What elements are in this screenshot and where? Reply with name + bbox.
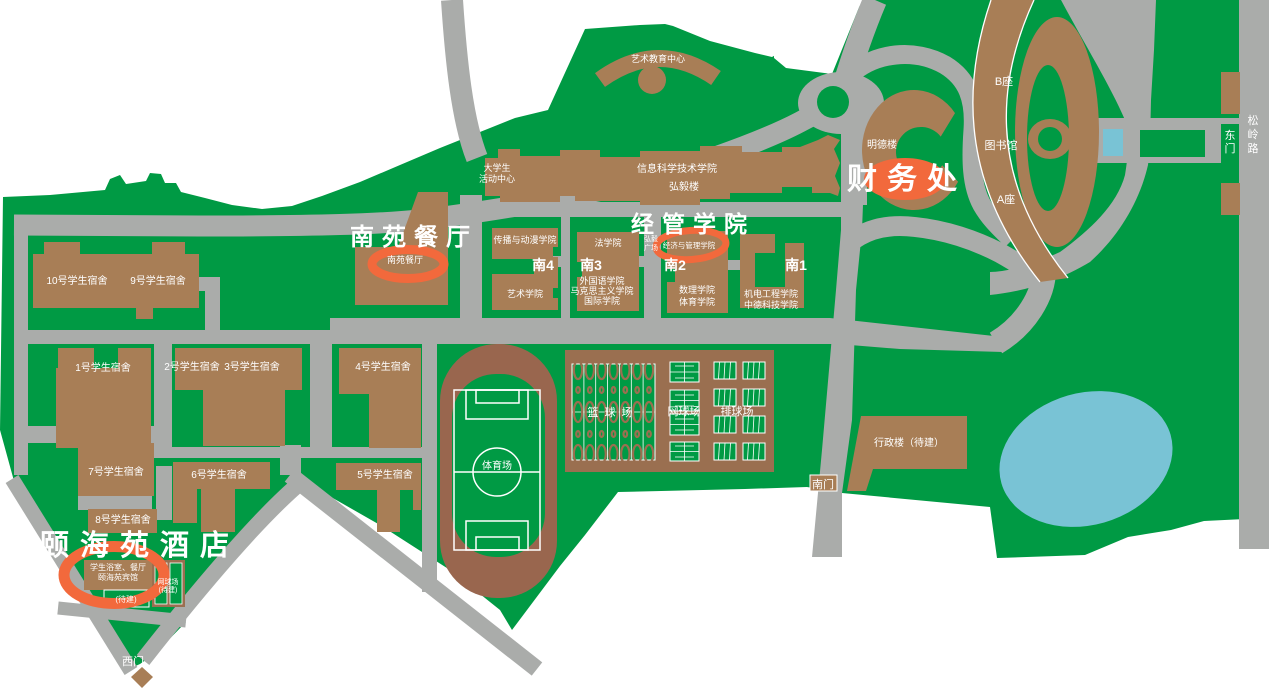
svg-text:3号学生宿舍: 3号学生宿舍	[224, 360, 280, 373]
svg-text:体育场: 体育场	[482, 459, 512, 472]
svg-text:马克思主义学院: 马克思主义学院	[570, 285, 633, 296]
svg-text:南3: 南3	[580, 257, 602, 273]
svg-text:机电工程学院: 机电工程学院	[744, 288, 798, 299]
svg-text:体育学院: 体育学院	[679, 296, 715, 307]
svg-text:2号学生宿舍: 2号学生宿舍	[164, 360, 220, 373]
svg-text:9号学生宿舍: 9号学生宿舍	[130, 274, 186, 287]
svg-text:篮球场: 篮球场	[588, 405, 639, 419]
svg-text:南门: 南门	[812, 477, 834, 491]
svg-text:图书馆: 图书馆	[985, 138, 1018, 152]
svg-text:传播与动漫学院: 传播与动漫学院	[493, 234, 556, 245]
svg-text:网球场: 网球场	[668, 404, 701, 418]
svg-text:广场: 广场	[644, 243, 658, 252]
svg-text:信息科学技术学院: 信息科学技术学院	[637, 162, 717, 175]
svg-text:8号学生宿舍: 8号学生宿舍	[95, 513, 151, 526]
svg-text:经管学院: 经管学院	[631, 211, 755, 237]
svg-text:路: 路	[1248, 142, 1259, 155]
svg-text:东: 东	[1225, 129, 1236, 142]
svg-text:南苑餐厅: 南苑餐厅	[350, 224, 478, 251]
svg-text:(待建): (待建)	[115, 594, 137, 604]
svg-text:门: 门	[1225, 141, 1236, 155]
svg-text:法学院: 法学院	[594, 237, 621, 248]
svg-text:学生浴室、餐厅: 学生浴室、餐厅	[90, 562, 146, 572]
svg-text:外国语学院: 外国语学院	[579, 275, 624, 286]
svg-text:1号学生宿舍: 1号学生宿舍	[75, 361, 131, 374]
svg-text:7号学生宿舍: 7号学生宿舍	[88, 465, 144, 478]
svg-text:网球场: 网球场	[158, 577, 179, 586]
svg-text:5号学生宿舍: 5号学生宿舍	[357, 468, 413, 481]
svg-text:岭: 岭	[1248, 127, 1259, 141]
svg-text:南1: 南1	[785, 257, 807, 273]
svg-text:弘毅楼: 弘毅楼	[669, 180, 699, 193]
svg-text:数理学院: 数理学院	[679, 284, 715, 295]
svg-text:行政楼（待建）: 行政楼（待建）	[874, 436, 944, 449]
svg-text:南4: 南4	[532, 257, 554, 273]
svg-text:中德科技学院: 中德科技学院	[744, 299, 798, 310]
svg-text:活动中心: 活动中心	[479, 173, 515, 184]
svg-text:B座: B座	[995, 74, 1013, 88]
svg-text:艺术学院: 艺术学院	[507, 288, 543, 299]
svg-text:10号学生宿舍: 10号学生宿舍	[46, 274, 107, 287]
svg-text:排球场: 排球场	[721, 404, 754, 418]
svg-text:6号学生宿舍: 6号学生宿舍	[191, 468, 247, 481]
svg-text:明德楼: 明德楼	[867, 138, 897, 151]
svg-text:大学生: 大学生	[483, 162, 510, 173]
svg-text:颐海苑宾馆: 颐海苑宾馆	[98, 572, 138, 582]
svg-text:南2: 南2	[664, 257, 686, 273]
svg-text:国际学院: 国际学院	[584, 295, 620, 306]
svg-text:艺术教育中心: 艺术教育中心	[631, 53, 685, 64]
svg-text:经济与管理学院: 经济与管理学院	[663, 240, 716, 250]
svg-text:4号学生宿舍: 4号学生宿舍	[355, 360, 411, 373]
svg-text:松: 松	[1248, 113, 1259, 127]
svg-text:财务处: 财务处	[847, 163, 967, 196]
svg-text:南苑餐厅: 南苑餐厅	[387, 254, 423, 265]
svg-text:(待建): (待建)	[159, 585, 178, 594]
svg-text:颐海苑酒店: 颐海苑酒店	[40, 529, 240, 562]
svg-text:西门: 西门	[122, 654, 144, 668]
svg-text:A座: A座	[997, 192, 1015, 206]
